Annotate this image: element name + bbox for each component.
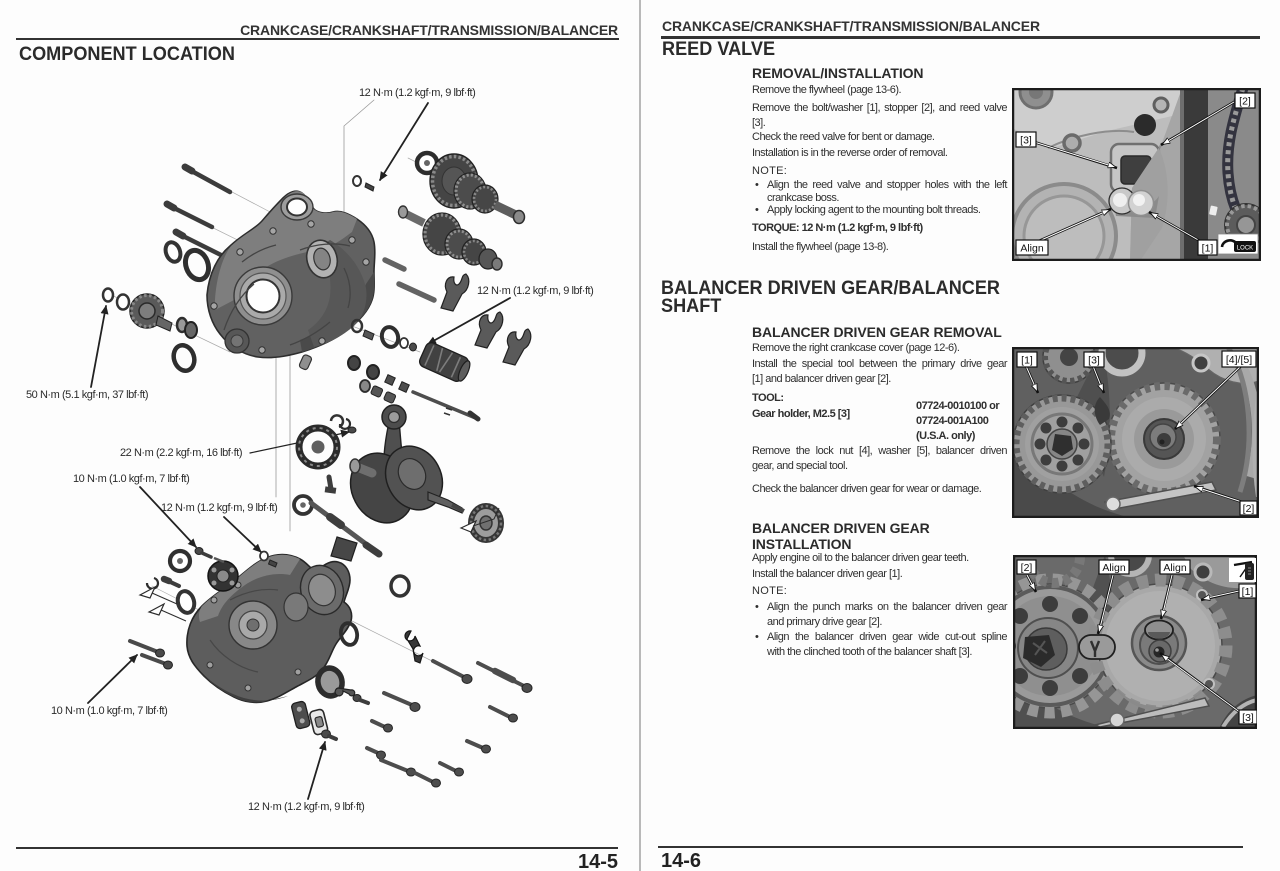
svg-text:Align: Align <box>1163 562 1187 574</box>
svg-text:[1]: [1] <box>1242 586 1254 598</box>
svg-text:[4]/[5]: [4]/[5] <box>1226 354 1252 366</box>
svg-text:[3]: [3] <box>1242 712 1254 724</box>
svg-text:[2]: [2] <box>1239 96 1251 108</box>
svg-text:[2]: [2] <box>1021 562 1033 574</box>
svg-text:[2]: [2] <box>1243 503 1255 515</box>
svg-text:[3]: [3] <box>1020 135 1032 147</box>
svg-text:Align: Align <box>1020 243 1044 255</box>
svg-text:[1]: [1] <box>1202 243 1214 255</box>
svg-text:Align: Align <box>1102 562 1126 574</box>
svg-text:LOCK: LOCK <box>1237 246 1253 252</box>
svg-text:[1]: [1] <box>1021 355 1033 367</box>
svg-text:[3]: [3] <box>1088 355 1100 367</box>
